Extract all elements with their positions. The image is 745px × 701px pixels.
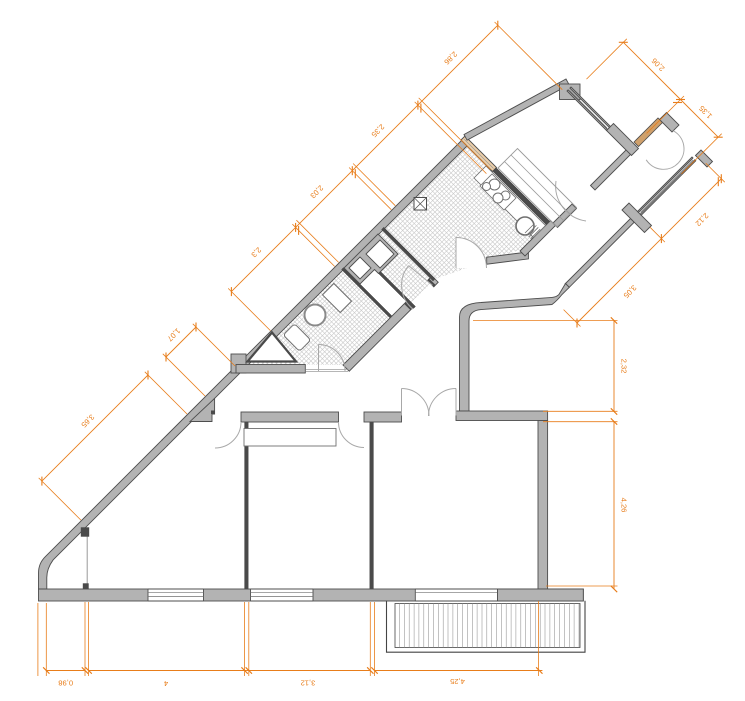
svg-text:3,05: 3,05 bbox=[622, 283, 639, 300]
svg-text:2,06: 2,06 bbox=[650, 56, 667, 73]
svg-text:3,65: 3,65 bbox=[79, 412, 96, 429]
svg-text:4,26: 4,26 bbox=[620, 498, 629, 513]
svg-text:2,12: 2,12 bbox=[694, 211, 711, 228]
svg-text:1,35: 1,35 bbox=[697, 104, 714, 121]
svg-text:2,3: 2,3 bbox=[249, 245, 263, 259]
svg-text:4: 4 bbox=[164, 679, 168, 688]
svg-text:1,07: 1,07 bbox=[165, 326, 182, 343]
svg-text:0,98: 0,98 bbox=[58, 679, 73, 688]
svg-text:2,35: 2,35 bbox=[369, 122, 386, 139]
svg-text:3,12: 3,12 bbox=[301, 679, 316, 688]
svg-text:2,03: 2,03 bbox=[308, 183, 325, 200]
svg-text:4,25: 4,25 bbox=[450, 677, 465, 686]
svg-text:2,86: 2,86 bbox=[442, 50, 459, 67]
svg-text:2,32: 2,32 bbox=[620, 359, 629, 374]
